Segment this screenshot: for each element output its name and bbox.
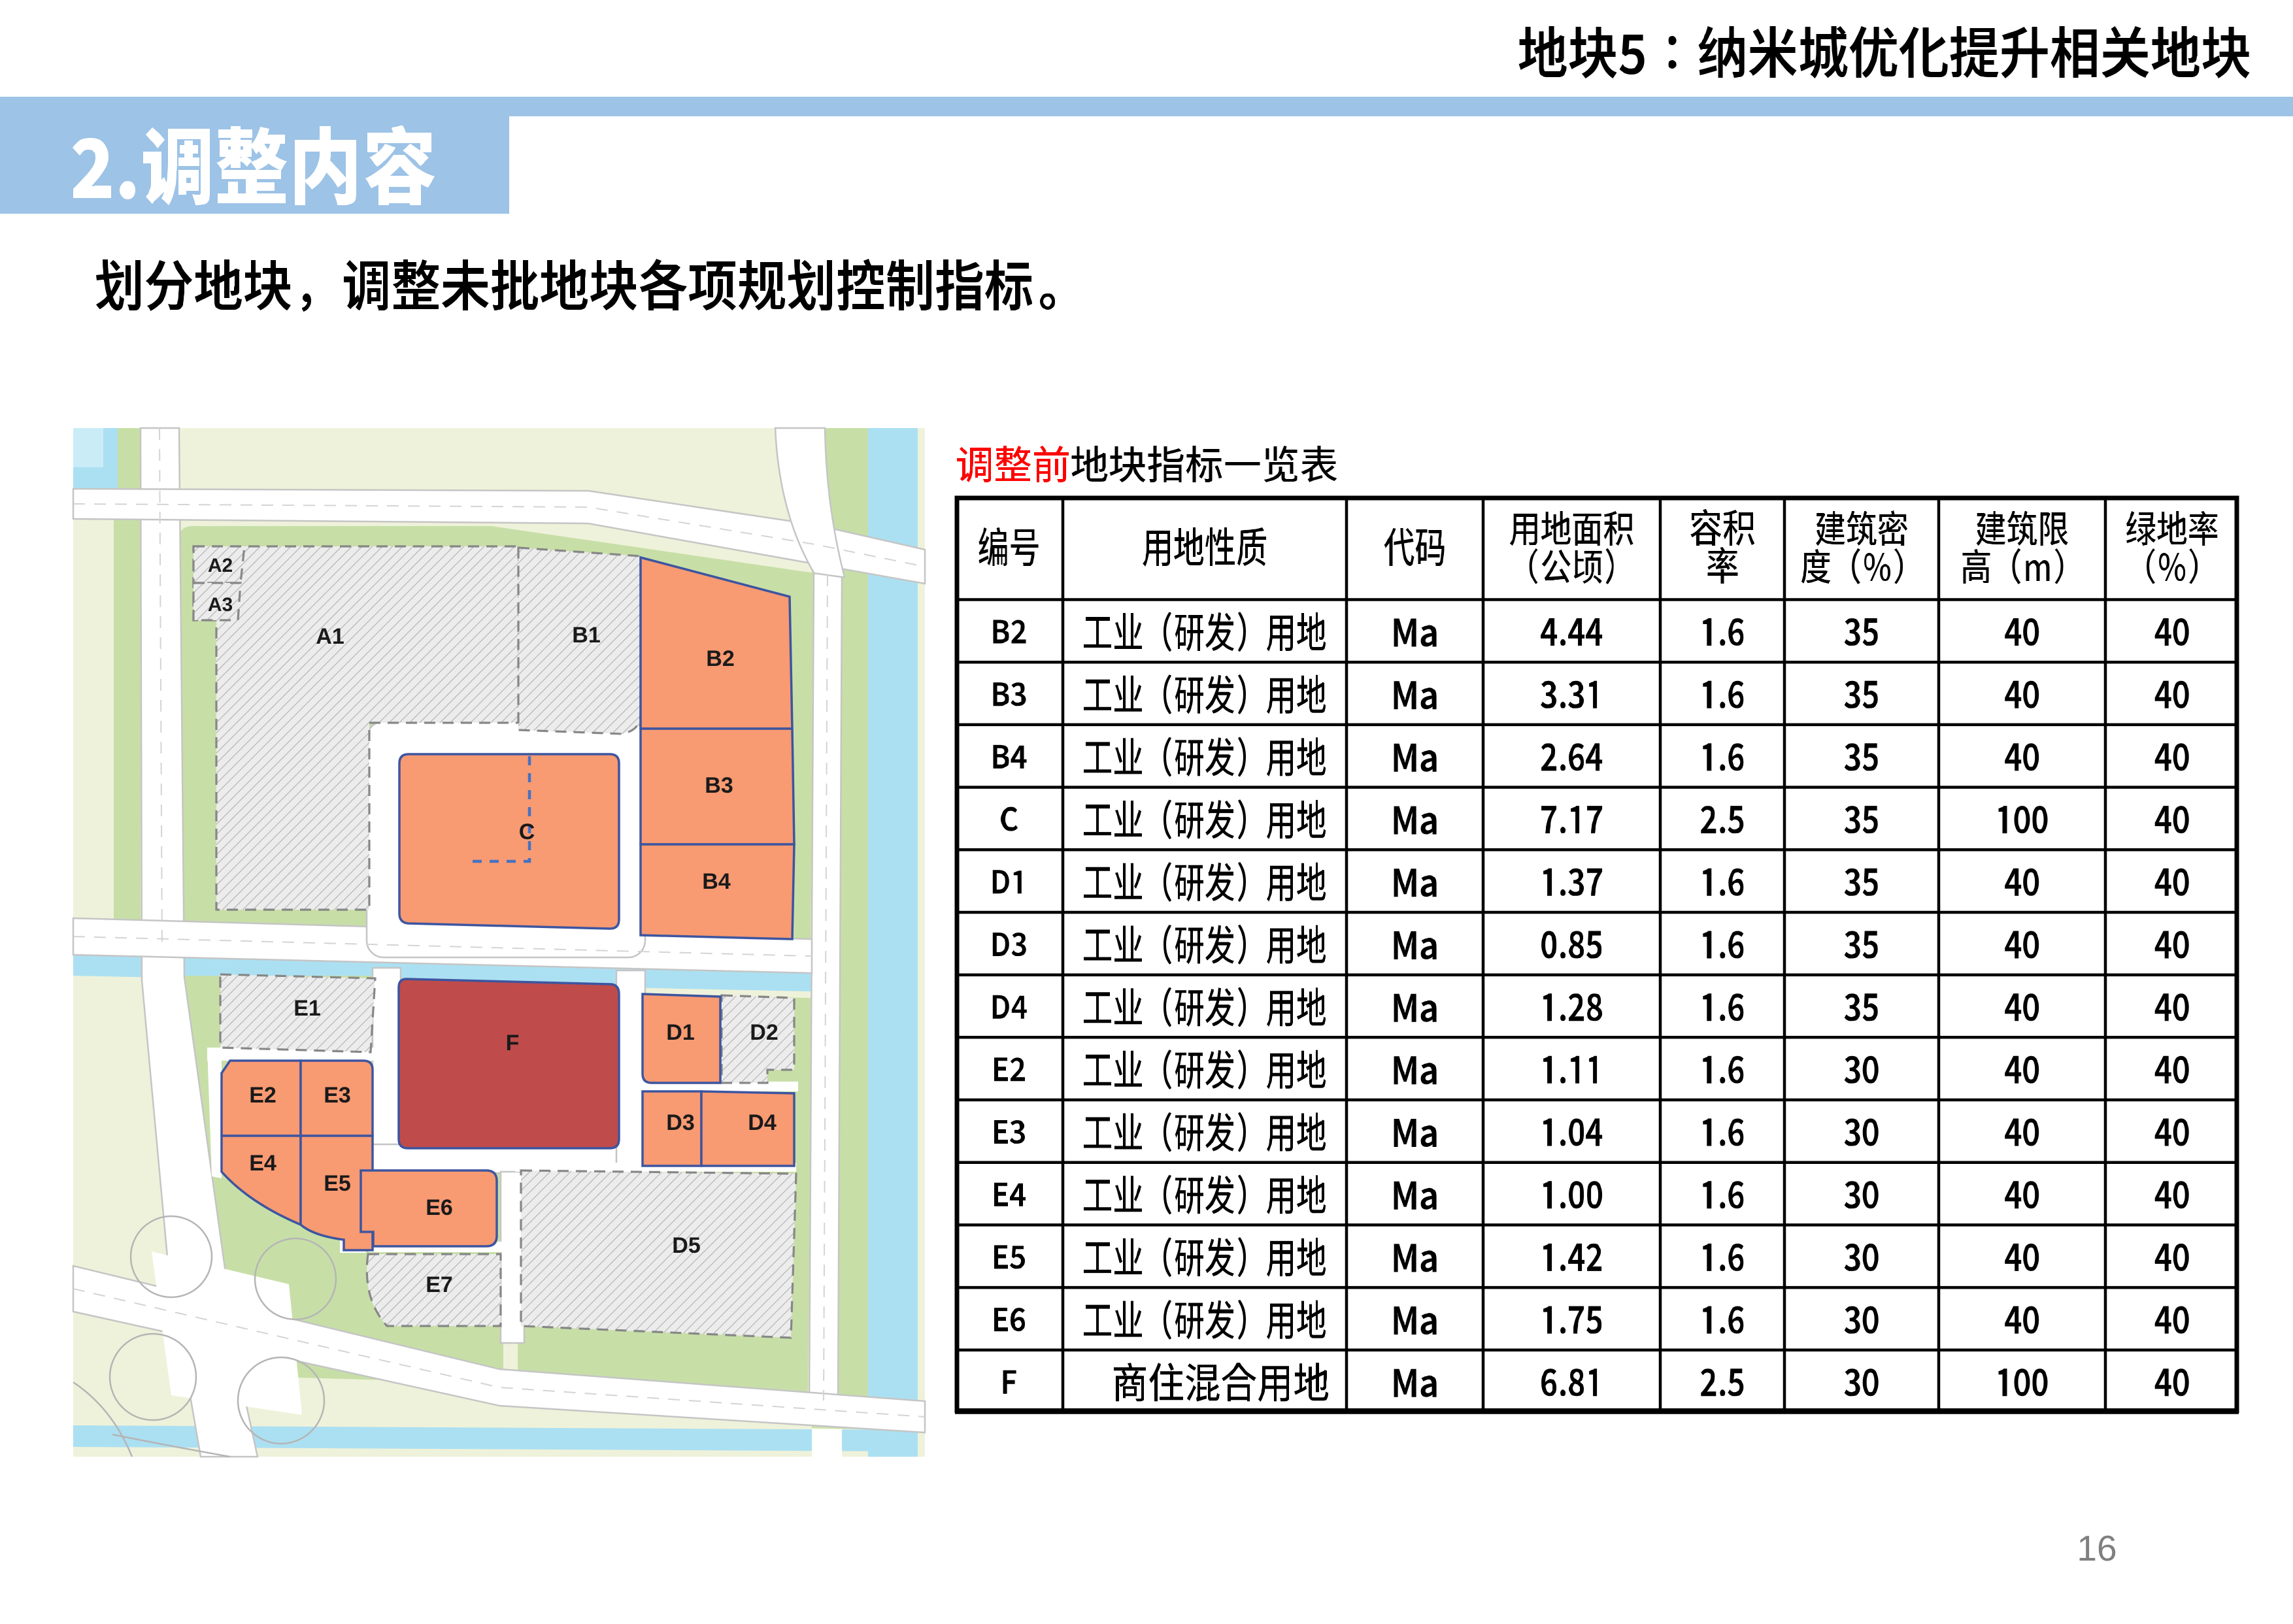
svg-text:D5: D5 (672, 1233, 700, 1258)
svg-text:D1: D1 (666, 1020, 694, 1045)
svg-text:A2: A2 (208, 555, 233, 576)
svg-text:E5: E5 (324, 1171, 351, 1196)
svg-text:D2: D2 (750, 1020, 778, 1045)
svg-text:D3: D3 (666, 1110, 694, 1135)
svg-text:E2: E2 (249, 1083, 276, 1108)
svg-text:A3: A3 (208, 594, 233, 616)
svg-text:E4: E4 (249, 1151, 276, 1176)
svg-text:E7: E7 (426, 1272, 453, 1297)
svg-text:E1: E1 (293, 996, 321, 1021)
svg-text:C: C (519, 820, 535, 844)
svg-text:E3: E3 (324, 1083, 351, 1108)
svg-text:F: F (506, 1031, 520, 1055)
svg-text:16: 16 (2077, 1528, 2117, 1568)
svg-text:B3: B3 (705, 773, 733, 798)
svg-text:B2: B2 (706, 646, 734, 671)
svg-text:B1: B1 (572, 623, 600, 648)
svg-text:A1: A1 (316, 624, 344, 649)
svg-text:E6: E6 (426, 1195, 453, 1220)
svg-text:D4: D4 (748, 1110, 777, 1135)
svg-text:B4: B4 (702, 869, 731, 894)
